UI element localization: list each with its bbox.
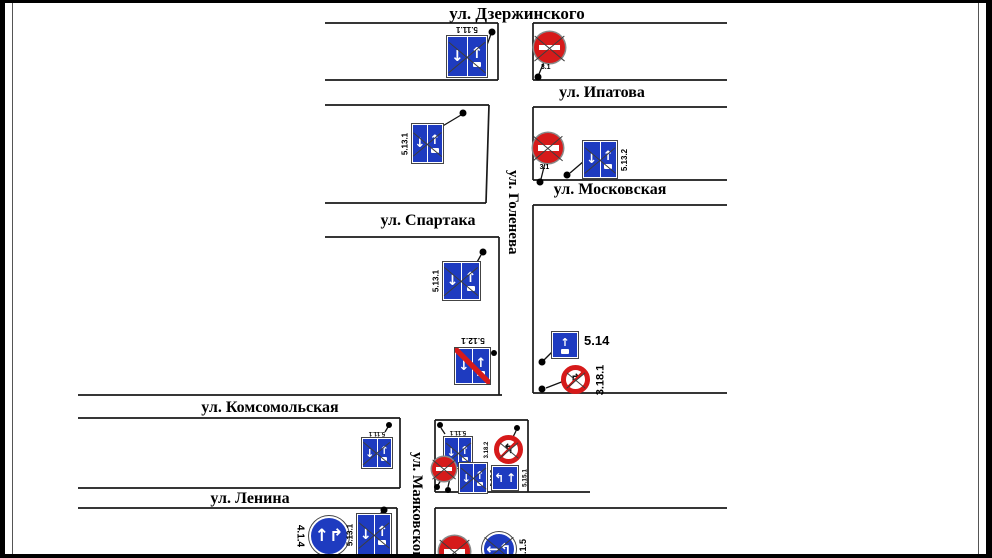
sign-code-label: 4.1.5 bbox=[518, 539, 528, 558]
street-label-dzerzhinskogo: ул. Дзержинского bbox=[437, 4, 597, 24]
traffic-sign-3-18-2: ↰ 3.18.2 bbox=[494, 435, 523, 464]
sign-code-label: 3.1 bbox=[541, 64, 551, 71]
sign-code-label: 5.15.1 bbox=[522, 469, 529, 487]
bus-icon bbox=[431, 148, 439, 153]
traffic-sign-4-1-5: ←↰ 4.1.5 bbox=[482, 532, 516, 558]
no-entry-sign-icon bbox=[534, 32, 565, 63]
street-label-komsomolskaya: ул. Комсомольская bbox=[190, 399, 350, 417]
sign-code-label: 3.1 bbox=[540, 164, 550, 171]
traffic-sign-3-18-1: ↱ 3.18.1 bbox=[561, 365, 590, 394]
red-slash bbox=[565, 369, 586, 390]
sign-code-label: 5.13.1 bbox=[346, 524, 355, 546]
traffic-sign-3-1: 3.1 bbox=[533, 133, 563, 163]
street-label-lenina: ул. Ленина bbox=[190, 490, 310, 508]
no-entry-sign-icon bbox=[533, 133, 563, 163]
bus-road-sign-icon: ↓ ↑ bbox=[583, 141, 617, 178]
bus-icon bbox=[378, 540, 386, 545]
traffic-sign-5-11-1: ↓ ↑ 5.11.1 bbox=[447, 36, 487, 77]
straight-or-right-sign-icon: ↑↱ bbox=[309, 516, 349, 556]
bus-road-sign-icon: ↓ ↑ bbox=[362, 438, 392, 468]
street-scheme-map: ул. Дзержинского ул. Ипатова ул. Московс… bbox=[0, 0, 992, 558]
no-entry-sign-icon bbox=[439, 536, 470, 558]
sign-code-label: 5.11.1 bbox=[450, 429, 466, 435]
bus-icon bbox=[477, 482, 483, 486]
bus-road-sign-icon: ↓ ↑ bbox=[447, 36, 487, 77]
sign-code-label: 4.1.4 bbox=[295, 525, 306, 547]
street-label-moskovskaya: ул. Московская bbox=[540, 181, 680, 199]
sign-code-label: 5.13.1 bbox=[432, 270, 441, 292]
bus-road-sign-icon: ↓ ↑ bbox=[412, 124, 443, 163]
bus-icon bbox=[381, 457, 387, 461]
sign-code-label: 5.11.1 bbox=[369, 430, 385, 436]
straight-or-left-sign-icon: ←↰ bbox=[482, 532, 516, 558]
traffic-sign-3-1: 3.1 bbox=[534, 32, 565, 63]
bus-icon bbox=[467, 286, 475, 291]
traffic-sign-5-11-1: ↓ ↑ 5.11.1 bbox=[362, 438, 392, 468]
traffic-sign-5-13-1: ↓ ↑ 5.13.1 bbox=[443, 262, 480, 300]
traffic-sign-3-1 bbox=[439, 536, 470, 558]
no-left-turn-sign-icon: ↰ bbox=[494, 435, 523, 464]
sign-code-label: 5.12.1 bbox=[461, 336, 485, 346]
sign-code-label: 5.11.1 bbox=[456, 25, 478, 34]
traffic-sign-5-13-2: ↓ ↑ 5.13.2 bbox=[459, 463, 487, 493]
lane-directions-sign-icon: ↰↑ bbox=[492, 466, 518, 490]
sign-code-label: 5.14 bbox=[584, 333, 609, 348]
sign-code-label: 5.13.1 bbox=[401, 132, 410, 154]
bus-road-end-sign-icon: ↓ ↑ bbox=[455, 348, 490, 384]
bus-lane-sign-icon: ↑ bbox=[552, 332, 578, 358]
bus-road-sign-icon: ↓ ↑ bbox=[357, 514, 391, 556]
traffic-sign-3-1 bbox=[432, 457, 456, 481]
bus-icon bbox=[604, 164, 612, 169]
no-entry-sign-icon bbox=[432, 457, 456, 481]
bus-icon bbox=[473, 62, 481, 67]
traffic-sign-5-14: ↑ 5.14 bbox=[552, 332, 578, 358]
traffic-sign-5-13-2: ↓ ↑ 5.13.2 bbox=[583, 141, 617, 178]
sign-code-label: 3.18.1 bbox=[595, 364, 607, 395]
sign-code-label: 5.13.2 bbox=[620, 148, 629, 170]
bus-road-sign-icon: ↓ ↑ bbox=[443, 262, 480, 300]
traffic-sign-5-13-1: ↓ ↑ 5.13.1 bbox=[412, 124, 443, 163]
traffic-sign-5-15-1: ↰↑ 5.15.1 bbox=[492, 466, 518, 490]
bus-icon bbox=[462, 457, 468, 461]
street-label-spartaka: ул. Спартака bbox=[358, 212, 498, 230]
traffic-sign-5-12-1: ↓ ↑ 5.12.1 bbox=[455, 348, 490, 384]
street-label-mayakovskogo: ул. Маяковского bbox=[408, 452, 425, 558]
traffic-sign-4-1-4: ↑↱ 4.1.4 bbox=[309, 516, 349, 556]
no-right-turn-sign-icon: ↱ bbox=[561, 365, 590, 394]
red-stripe bbox=[455, 348, 490, 384]
bus-icon bbox=[561, 349, 569, 354]
red-slash bbox=[498, 439, 519, 460]
traffic-sign-5-13-1: ↓ ↑ 5.13.1 bbox=[357, 514, 391, 556]
street-label-goleneva: ул. Голенева bbox=[504, 170, 521, 255]
sign-code-label: 3.18.2 bbox=[484, 441, 490, 458]
street-label-ipatova: ул. Ипатова bbox=[542, 84, 662, 102]
bus-road-sign-icon: ↓ ↑ bbox=[459, 463, 487, 493]
